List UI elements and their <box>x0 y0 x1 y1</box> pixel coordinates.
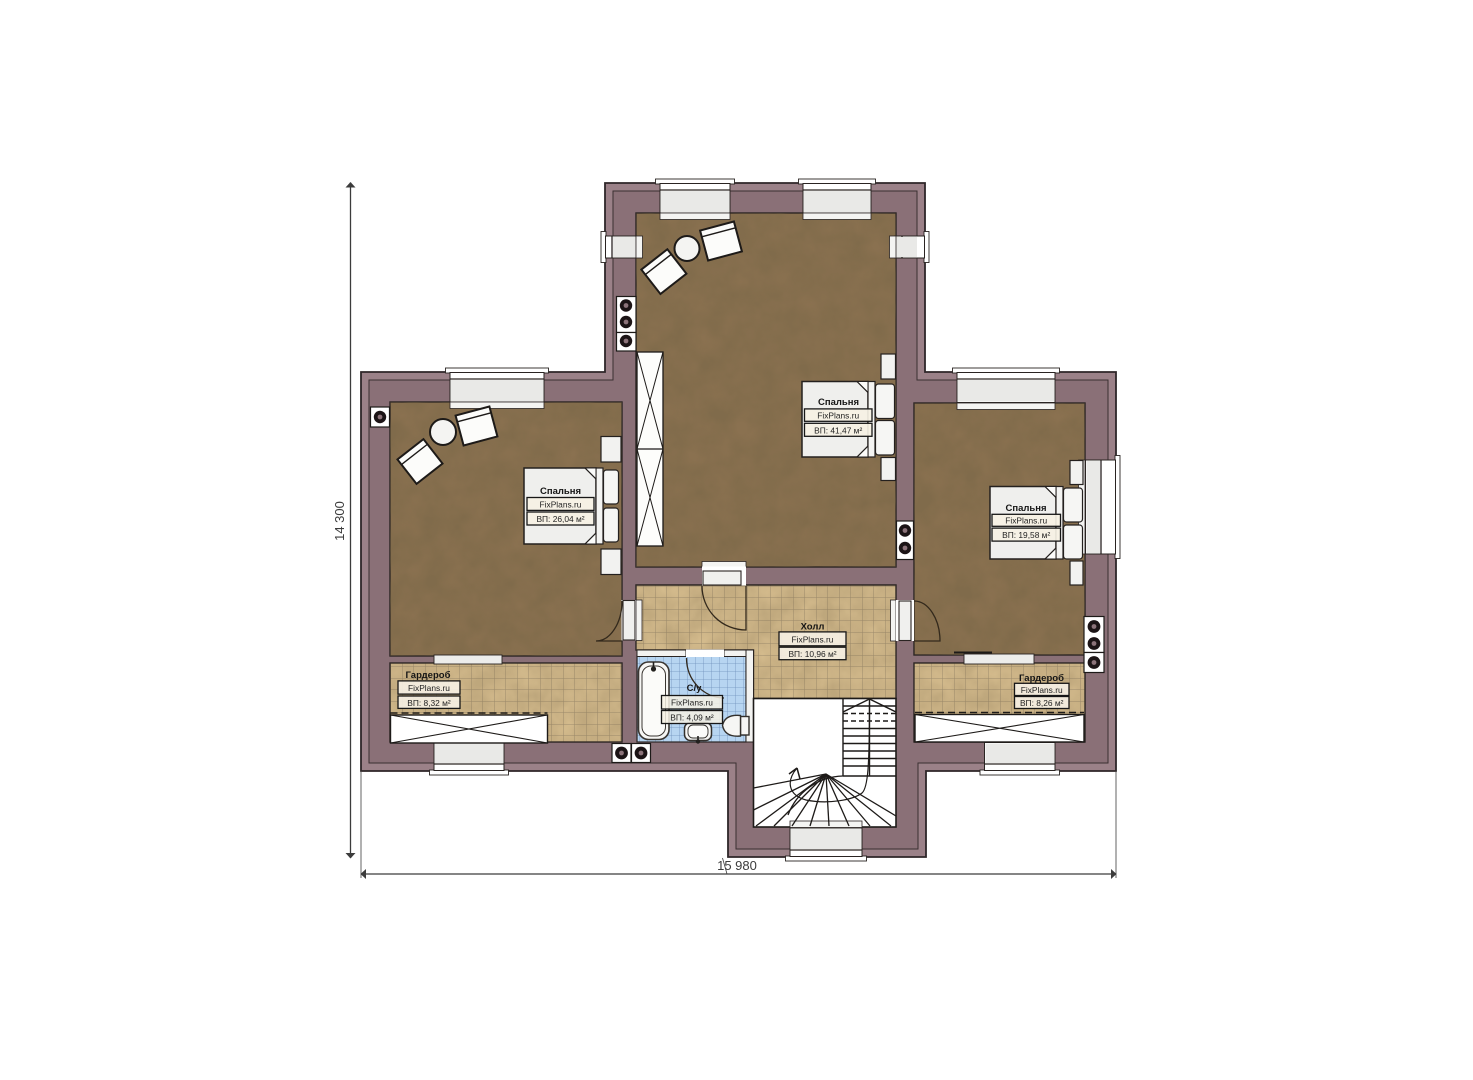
svg-text:FixPlans.ru: FixPlans.ru <box>1005 516 1047 526</box>
svg-text:ВП: 41,47 м²: ВП: 41,47 м² <box>814 425 862 435</box>
svg-text:ВП: 10,96 м²: ВП: 10,96 м² <box>788 649 836 659</box>
svg-text:14 300: 14 300 <box>332 501 347 541</box>
svg-text:Холл: Холл <box>801 622 825 633</box>
svg-text:Спальня: Спальня <box>818 397 859 408</box>
svg-text:FixPlans.ru: FixPlans.ru <box>1021 685 1063 695</box>
svg-text:FixPlans.ru: FixPlans.ru <box>817 410 859 420</box>
svg-text:Спальня: Спальня <box>1005 503 1046 514</box>
svg-text:ВП: 4,09 м²: ВП: 4,09 м² <box>670 713 714 723</box>
svg-text:FixPlans.ru: FixPlans.ru <box>792 634 834 644</box>
svg-text:Спальня: Спальня <box>540 486 581 497</box>
svg-text:15 980: 15 980 <box>717 858 757 873</box>
svg-text:ВП: 8,26 м²: ВП: 8,26 м² <box>1020 698 1064 708</box>
svg-text:FixPlans.ru: FixPlans.ru <box>671 698 713 708</box>
svg-text:ВП: 8,32 м²: ВП: 8,32 м² <box>407 698 451 708</box>
svg-text:ВП: 26,04 м²: ВП: 26,04 м² <box>536 514 584 524</box>
svg-text:С/у: С/у <box>687 683 703 694</box>
svg-text:Гардероб: Гардероб <box>406 670 451 681</box>
svg-text:FixPlans.ru: FixPlans.ru <box>540 499 582 509</box>
svg-text:FixPlans.ru: FixPlans.ru <box>408 683 450 693</box>
svg-text:ВП: 19,58 м²: ВП: 19,58 м² <box>1002 530 1050 540</box>
svg-text:Гардероб: Гардероб <box>1019 673 1064 684</box>
